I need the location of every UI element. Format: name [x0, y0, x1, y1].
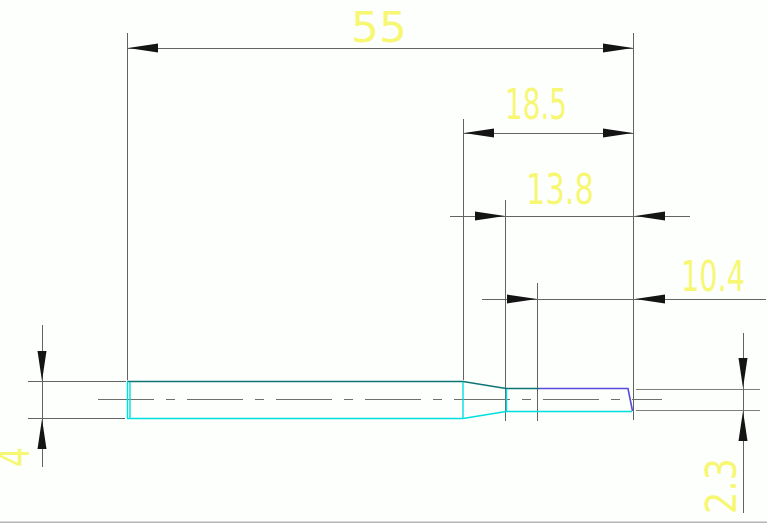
- arrowhead-right-icon: [603, 129, 633, 138]
- arrowhead-right-icon: [603, 44, 633, 53]
- dimension-value-2-3: 2.3: [697, 458, 746, 514]
- arrowhead-up-icon: [38, 419, 47, 449]
- dimension-small-diameter: 2.3: [636, 333, 760, 514]
- dimension-large-diameter: 4: [0, 325, 126, 467]
- part-outline: [98, 382, 662, 420]
- dimension-value-10-4: 10.4: [681, 252, 745, 301]
- arrowhead-right-icon: [635, 212, 665, 221]
- arrowhead-left-icon: [128, 44, 158, 53]
- arrowhead-left-icon: [475, 212, 505, 221]
- part-bottom-edge: [128, 412, 633, 419]
- dimension-value-55: 55: [351, 3, 407, 52]
- dimension-value-18-5: 18.5: [505, 80, 567, 129]
- arrowhead-left-icon: [507, 295, 537, 304]
- dimension-value-13-8: 13.8: [526, 165, 594, 214]
- arrowhead-left-icon: [464, 129, 494, 138]
- dimension-step-to-end: 18.5: [463, 80, 634, 380]
- arrowhead-down-icon: [739, 358, 748, 388]
- drawing-svg: 55 18.5 13.8 10.4 4: [0, 0, 767, 523]
- cad-drawing-canvas: 55 18.5 13.8 10.4 4: [0, 0, 767, 523]
- dimension-blue-feature: 10.4: [482, 252, 766, 421]
- arrowhead-down-icon: [38, 351, 47, 381]
- arrowhead-up-icon: [739, 411, 748, 441]
- dimension-small-section: 13.8: [450, 165, 690, 421]
- dimension-value-4: 4: [0, 447, 39, 467]
- part-top-edge: [127, 382, 539, 389]
- arrowhead-right-icon: [635, 295, 665, 304]
